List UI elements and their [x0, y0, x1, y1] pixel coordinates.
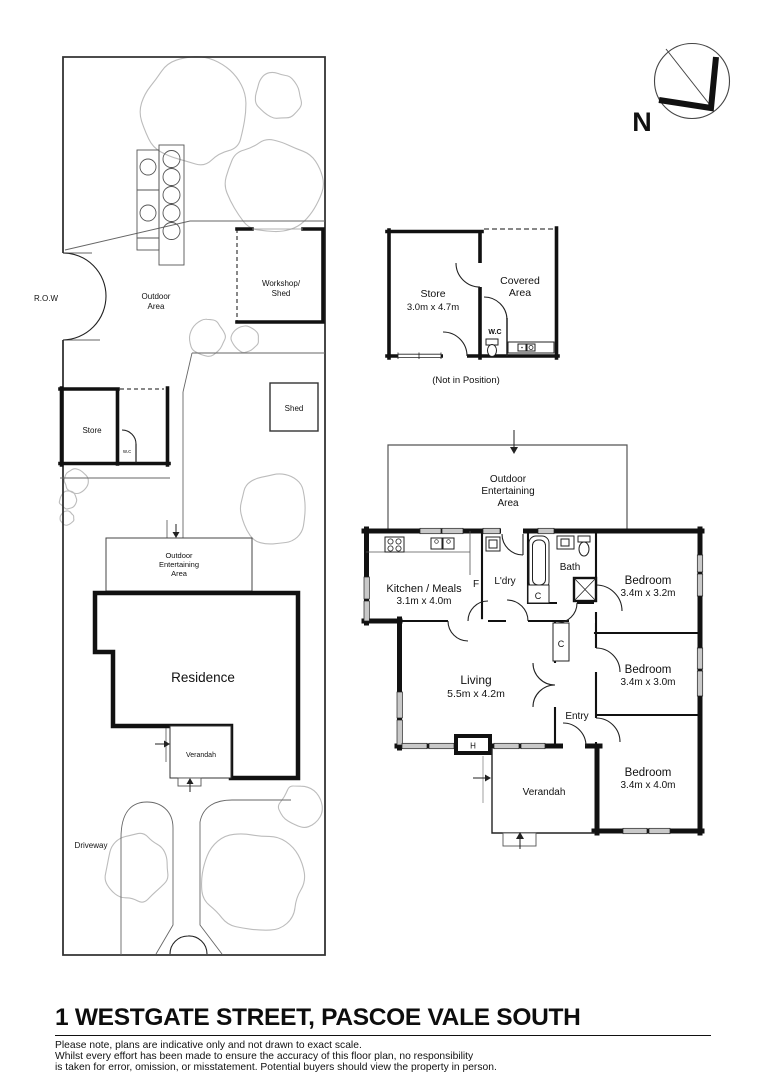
- label-site-store: Store: [82, 426, 102, 435]
- label-driveway: Driveway: [75, 841, 108, 850]
- store-wc-stall: [486, 318, 507, 357]
- tree: [255, 72, 301, 118]
- label-residence: Residence: [171, 670, 235, 685]
- workshop-shed: [237, 229, 323, 322]
- label-heater: H: [470, 742, 476, 751]
- label-bedroom3: Bedroom: [625, 767, 672, 779]
- label-site-oea: Outdoor: [165, 551, 193, 560]
- tree: [140, 57, 246, 165]
- label-bedroom2: Bedroom: [625, 664, 672, 676]
- north-arrow-icon: N: [632, 44, 729, 138]
- water-tanks: [137, 145, 184, 265]
- disclaimer-line-1: Please note, plans are indicative only a…: [55, 1040, 711, 1051]
- label-covered-area: Covered: [500, 275, 540, 287]
- tree: [231, 326, 258, 353]
- label-site-oea-3: Area: [171, 569, 188, 578]
- site-boundary: [63, 57, 325, 955]
- toilet-icon: [488, 345, 497, 357]
- kitchen-fixtures: [366, 531, 470, 575]
- label-bedroom1-dims: 3.4m x 3.2m: [620, 588, 675, 599]
- tree: [189, 319, 225, 356]
- label-fridge: F: [473, 579, 479, 590]
- label-cupboard-bath: C: [535, 591, 542, 601]
- label-entry: Entry: [565, 711, 588, 722]
- label-store-dims: 3.0m x 4.7m: [407, 302, 459, 313]
- label-kitchen: Kitchen / Meals: [386, 583, 462, 595]
- main-verandah: [473, 748, 595, 849]
- title-rule: [55, 1035, 711, 1036]
- floorplan-page: N: [0, 0, 763, 1080]
- store-walls: [387, 228, 558, 360]
- label-workshop: Workshop/: [262, 279, 301, 288]
- tree: [240, 474, 305, 544]
- label-site-verandah: Verandah: [186, 752, 216, 759]
- label-site-shed: Shed: [285, 404, 304, 413]
- page-title: 1 WESTGATE STREET, PASCOE VALE SOUTH: [55, 1004, 711, 1032]
- floorplan-drawing: N: [0, 0, 763, 1080]
- label-not-in-position: (Not in Position): [432, 375, 500, 386]
- label-outdoor-area-2: Area: [148, 302, 165, 311]
- title-block: 1 WESTGATE STREET, PASCOE VALE SOUTH Ple…: [55, 1004, 711, 1073]
- label-cupboard-hall: C: [558, 639, 565, 649]
- label-verandah: Verandah: [523, 787, 566, 798]
- disclaimer-line-3: is taken for error, omission, or misstat…: [55, 1062, 711, 1073]
- toilet-icon: [578, 536, 590, 542]
- site-store: [60, 388, 169, 465]
- label-store: Store: [420, 288, 445, 300]
- label-bath: Bath: [560, 562, 581, 573]
- label-workshop-2: Shed: [272, 289, 291, 298]
- oea-arrow-icon: [510, 430, 518, 454]
- label-bedroom2-dims: 3.4m x 3.0m: [620, 677, 675, 688]
- label-wc: W.C: [488, 329, 501, 336]
- north-label: N: [632, 107, 652, 137]
- label-bedroom1: Bedroom: [625, 575, 672, 587]
- tree: [105, 833, 168, 902]
- floor-plan: Outdoor Entertaining Area Kitchen / Meal…: [364, 430, 703, 849]
- label-oea-2: Entertaining: [481, 486, 534, 497]
- label-oea-3: Area: [497, 498, 519, 509]
- label-oea: Outdoor: [490, 474, 527, 485]
- label-covered-area-2: Area: [509, 287, 531, 299]
- label-living-dims: 5.5m x 4.2m: [447, 688, 505, 700]
- label-outdoor-area: Outdoor: [142, 292, 171, 301]
- label-living: Living: [460, 673, 491, 687]
- store-bench-sink: [508, 342, 554, 353]
- label-kitchen-dims: 3.1m x 4.0m: [396, 596, 451, 607]
- row-gate: [63, 253, 106, 340]
- driveway: [121, 800, 291, 955]
- label-bedroom3-dims: 3.4m x 4.0m: [620, 780, 675, 791]
- trees: [59, 57, 323, 931]
- tree: [202, 834, 305, 930]
- site-oea-arrow-icon: [173, 524, 180, 538]
- label-site-wc: w.c: [122, 449, 131, 455]
- site-plan: R.O.W Outdoor Area Workshop/ Shed Store …: [34, 57, 325, 955]
- label-site-oea-2: Entertaining: [159, 560, 199, 569]
- disclaimer-line-2: Whilst every effort has been made to ens…: [55, 1051, 711, 1062]
- store-plan: Store 3.0m x 4.7m Covered Area W.C (Not …: [387, 228, 558, 386]
- tree: [59, 491, 76, 509]
- tree: [64, 469, 88, 494]
- tree: [278, 786, 322, 827]
- label-row: R.O.W: [34, 294, 58, 303]
- tree: [225, 140, 323, 232]
- label-laundry: L'dry: [494, 576, 515, 587]
- laundry-fixtures: [486, 537, 500, 551]
